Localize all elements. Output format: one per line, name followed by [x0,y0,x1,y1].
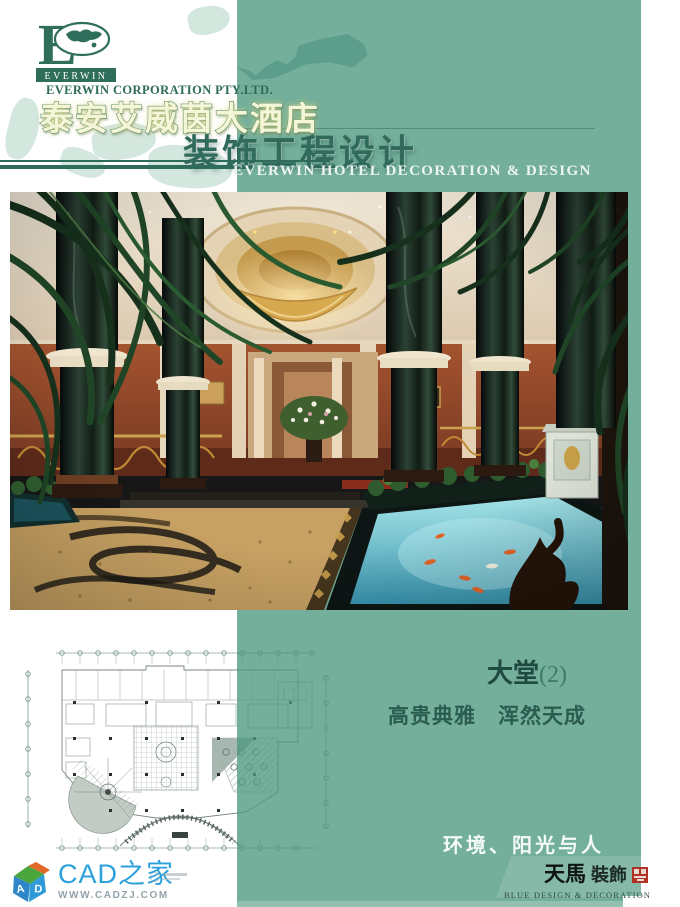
designer-name-en: BLUE DESIGN & DECORATION [504,890,648,900]
title-underline-thin [0,160,330,162]
site-logo[interactable]: A D CAD之家 WWW.CADZJ.COM [6,860,174,904]
slogan: 环境、阳光与人 [443,829,604,858]
site-url: WWW.CADZJ.COM [58,890,174,901]
map-shape [186,2,233,38]
bottom-sheen [237,901,641,907]
site-cube-icon: A D [6,860,52,904]
designer-logo: 天馬 裝飾 BLUE DESIGN & DECORATION [504,858,648,900]
title-underline-thick [0,165,253,169]
map-shape [1,95,45,162]
lobby-photo [10,192,628,610]
designer-seal-icon [632,867,648,883]
room-index: (2) [539,662,567,688]
tagline: 高贵典雅 浑然天成 [388,700,586,730]
faint-stamp [150,870,202,884]
room-title-cn: 大堂 [487,658,539,688]
everwin-logo: E EVERWIN [36,12,116,86]
cube-letter-d: D [34,883,43,896]
brochure-page: E EVERWIN EVERWIN CORPORATION PTY.LTD. 泰… [0,0,680,907]
designer-name-cn-suffix: 裝飾 [591,861,627,887]
room-title: 大堂(2) [487,653,567,690]
designer-name-cn: 天馬 [544,858,586,888]
logo-banner-text: EVERWIN [44,71,107,82]
subtitle-english: EVERWIN HOTEL DECORATION & DESIGN [233,163,592,180]
